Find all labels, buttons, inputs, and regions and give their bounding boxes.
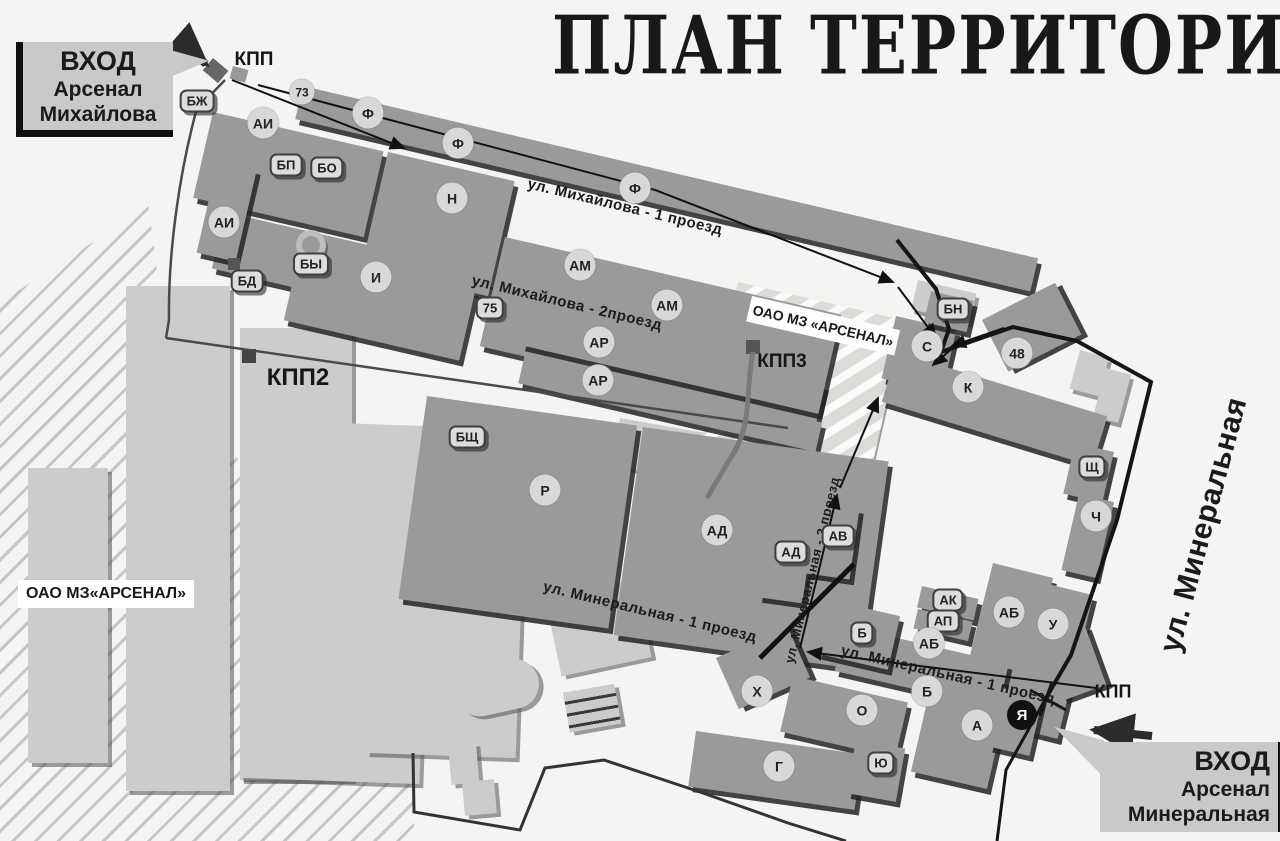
building-marker-БЫ: БЫ — [293, 253, 329, 276]
building-marker-О: О — [847, 695, 878, 726]
building-marker-Щ: Щ — [1078, 456, 1105, 479]
building-marker-БД: БД — [231, 270, 264, 293]
building-marker-Ч: Ч — [1081, 501, 1112, 532]
building-marker-АМ: АМ — [565, 250, 596, 281]
sign-line: Михайлова — [23, 103, 173, 128]
kpp3-road — [707, 352, 753, 498]
building-marker-75: 75 — [476, 297, 504, 320]
checkpoint-label-КПП: КПП — [235, 49, 274, 71]
building-marker-АМ: АМ — [652, 290, 683, 321]
building-marker-С: С — [912, 331, 943, 362]
map-title: ПЛАН ТЕРРИТОРИИ — [552, 0, 1278, 93]
sign-line: Арсенал — [1100, 778, 1270, 803]
building-marker-АИ: АИ — [248, 108, 279, 139]
building-marker-АБ: АБ — [914, 628, 945, 659]
sign-line: ВХОД — [1100, 746, 1270, 778]
territory-plan-map: ПЛАН ТЕРРИТОРИИ ВХОД Арсенал Михайлова В… — [0, 0, 1280, 841]
building-marker-Ф: Ф — [443, 128, 474, 159]
building-marker-БП: БП — [270, 154, 303, 177]
area-label-left-factory: ОАО МЗ«АРСЕНАЛ» — [18, 580, 194, 608]
building-marker-АБ: АБ — [994, 597, 1025, 628]
building-marker-Б: Б — [912, 676, 943, 707]
building-marker-БЩ: БЩ — [449, 426, 486, 449]
building-marker-А: А — [962, 710, 993, 741]
building-marker-БЖ: БЖ — [180, 90, 215, 113]
building-marker-Ю: Ю — [867, 752, 894, 775]
building-marker-АИ: АИ — [209, 207, 240, 238]
sign-line: Арсенал — [23, 78, 173, 103]
building-marker-К: К — [953, 372, 984, 403]
building-marker-БН: БН — [937, 298, 970, 321]
building-marker-48: 48 — [1002, 338, 1033, 369]
checkpoint-label-КПП2: КПП2 — [267, 364, 330, 392]
building-marker-73: 73 — [290, 80, 315, 105]
sign-line: Минеральная — [1100, 803, 1270, 828]
building-marker-Ф: Ф — [620, 173, 651, 204]
building-marker-Р: Р — [530, 475, 561, 506]
building-marker-Я: Я — [1007, 700, 1037, 730]
building-marker-АР: АР — [584, 327, 615, 358]
building-marker-У: У — [1038, 609, 1069, 640]
building-marker-АВ: АВ — [822, 525, 855, 548]
building-marker-Н: Н — [437, 183, 468, 214]
checkpoint-label-КПП: КПП — [1095, 682, 1132, 703]
entrance-sign-mineralnaya: ВХОД Арсенал Минеральная — [1100, 742, 1280, 832]
building-marker-Х: Х — [742, 676, 773, 707]
building-marker-АД: АД — [774, 541, 807, 564]
building-marker-АР: АР — [583, 365, 614, 396]
building-marker-Б: Б — [850, 622, 873, 645]
building-marker-АК: АК — [932, 589, 963, 612]
building-marker-Ф: Ф — [353, 98, 384, 129]
building-marker-АД: АД — [702, 515, 733, 546]
building-marker-И: И — [361, 262, 392, 293]
checkpoint-label-КПП3: КПП3 — [757, 351, 806, 373]
entrance-sign-mikhailova: ВХОД Арсенал Михайлова — [16, 42, 173, 137]
building-marker-БО: БО — [310, 157, 343, 180]
building-marker-Г: Г — [764, 751, 795, 782]
sign-line: ВХОД — [23, 46, 173, 78]
routes-and-boundaries — [0, 0, 1280, 841]
